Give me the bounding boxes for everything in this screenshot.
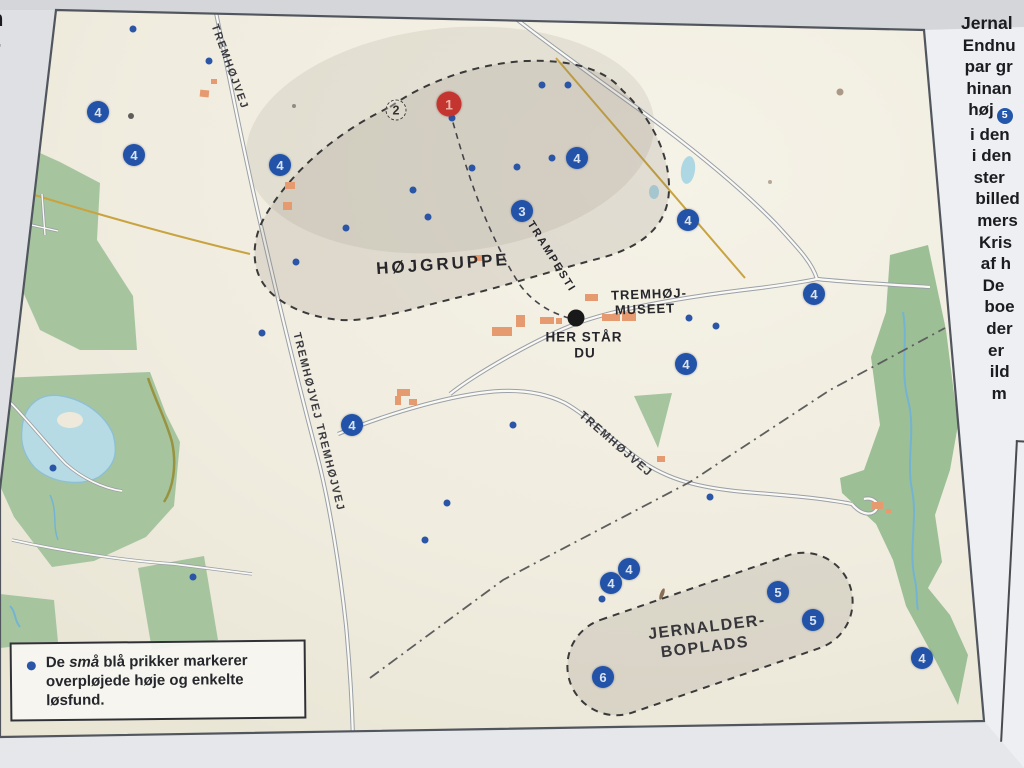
small-mound-dot xyxy=(510,422,517,429)
small-mound-dot xyxy=(565,82,572,89)
legend-box: De små blå prikker markerer overpløjede … xyxy=(10,639,307,721)
road-label-tremhojvej-west: TREMHØJVEJ TREMHØJVEJ xyxy=(290,332,345,513)
photographed-map-board: HØJGRUPPE TRAMPESTI TREMHØJ- MUSEET HER … xyxy=(0,0,1024,768)
map-marker-4: 4 xyxy=(675,353,697,375)
small-mound-dot xyxy=(514,164,521,171)
legend-text: De små blå prikker markerer overpløjede … xyxy=(46,651,299,711)
small-mound-dot xyxy=(259,330,266,337)
small-mound-dot xyxy=(50,465,57,472)
edge-letter-fragment-top: n xyxy=(0,6,3,32)
road-label-tremhojvej-east: TREMHØJVEJ xyxy=(576,410,654,480)
museum-label-line1: TREMHØJ- xyxy=(611,286,687,302)
side-text-line: der xyxy=(986,318,1024,340)
small-mound-dot xyxy=(469,165,476,172)
small-mound-dot xyxy=(422,537,429,544)
side-text-line: af h xyxy=(981,253,1024,275)
side-text-line: høj5 xyxy=(968,99,1024,123)
edge-letter-fragment-bottom: r xyxy=(0,36,1,62)
you-are-here-label-line2: DU xyxy=(574,346,596,360)
side-text-line: boe xyxy=(984,296,1024,318)
side-text-line: m xyxy=(992,383,1024,405)
side-text-line: Kris xyxy=(979,232,1024,254)
side-text-line: Endnu xyxy=(963,35,1024,57)
map-marker-4: 4 xyxy=(341,414,363,436)
side-figure-frame xyxy=(1000,440,1024,744)
small-mound-dot xyxy=(410,187,417,194)
map-marker-5: 5 xyxy=(802,609,824,631)
map-marker-4: 4 xyxy=(566,147,588,169)
road-label-tremhojvej-north: TREMHØJVEJ xyxy=(209,23,250,111)
side-text-column: JernalEndnupar grhinanhøj5i deni denster… xyxy=(961,13,1024,404)
small-mound-dot xyxy=(190,574,197,581)
footpath-label: TRAMPESTI xyxy=(525,220,578,295)
side-text-line: er xyxy=(988,340,1024,362)
small-mound-dot xyxy=(713,323,720,330)
map-marker-6: 6 xyxy=(592,666,614,688)
map-marker-1: 1 xyxy=(437,92,462,117)
legend-bullet-dot xyxy=(27,661,36,670)
side-text-line: ster xyxy=(974,167,1024,189)
small-mound-dot xyxy=(549,155,556,162)
small-mound-dot xyxy=(130,26,137,33)
map-marker-4: 4 xyxy=(269,154,291,176)
you-are-here-label-line1: HER STÅR xyxy=(545,330,622,344)
small-mound-dot xyxy=(444,500,451,507)
small-mound-dot xyxy=(343,225,350,232)
side-text-line: par gr xyxy=(965,56,1024,78)
side-text-line: i den xyxy=(972,145,1024,167)
small-mound-dot xyxy=(206,58,213,65)
side-text-line: Jernal xyxy=(961,13,1024,35)
map-marker-4: 4 xyxy=(123,144,145,166)
map-marker-4: 4 xyxy=(600,572,622,594)
map-marker-5: 5 xyxy=(767,581,789,603)
small-mound-dot xyxy=(539,82,546,89)
side-text-line: billed xyxy=(975,188,1024,210)
mound-group-label: HØJGRUPPE xyxy=(376,251,511,277)
side-text-line: hinan xyxy=(966,78,1024,100)
small-mound-dot xyxy=(425,214,432,221)
map-marker-4: 4 xyxy=(87,101,109,123)
map-marker-4: 4 xyxy=(677,209,699,231)
small-mound-dot xyxy=(686,315,693,322)
side-text-line: De xyxy=(983,275,1024,297)
side-text-marker-badge: 5 xyxy=(997,108,1013,124)
map-marker-4: 4 xyxy=(618,558,640,580)
side-text-line: mers xyxy=(977,210,1024,232)
map-marker-4: 4 xyxy=(803,283,825,305)
side-text-line: i den xyxy=(970,124,1024,146)
map-marker-4: 4 xyxy=(911,647,933,669)
map-marker-2: 2 xyxy=(386,100,407,121)
museum-label-line2: MUSEET xyxy=(615,301,676,316)
small-mound-dot xyxy=(293,259,300,266)
small-mound-dot xyxy=(707,494,714,501)
side-text-line: ild xyxy=(990,361,1024,383)
map-overlay: HØJGRUPPE TRAMPESTI TREMHØJ- MUSEET HER … xyxy=(0,0,1024,768)
small-mound-dot xyxy=(599,596,606,603)
map-marker-3: 3 xyxy=(511,200,533,222)
